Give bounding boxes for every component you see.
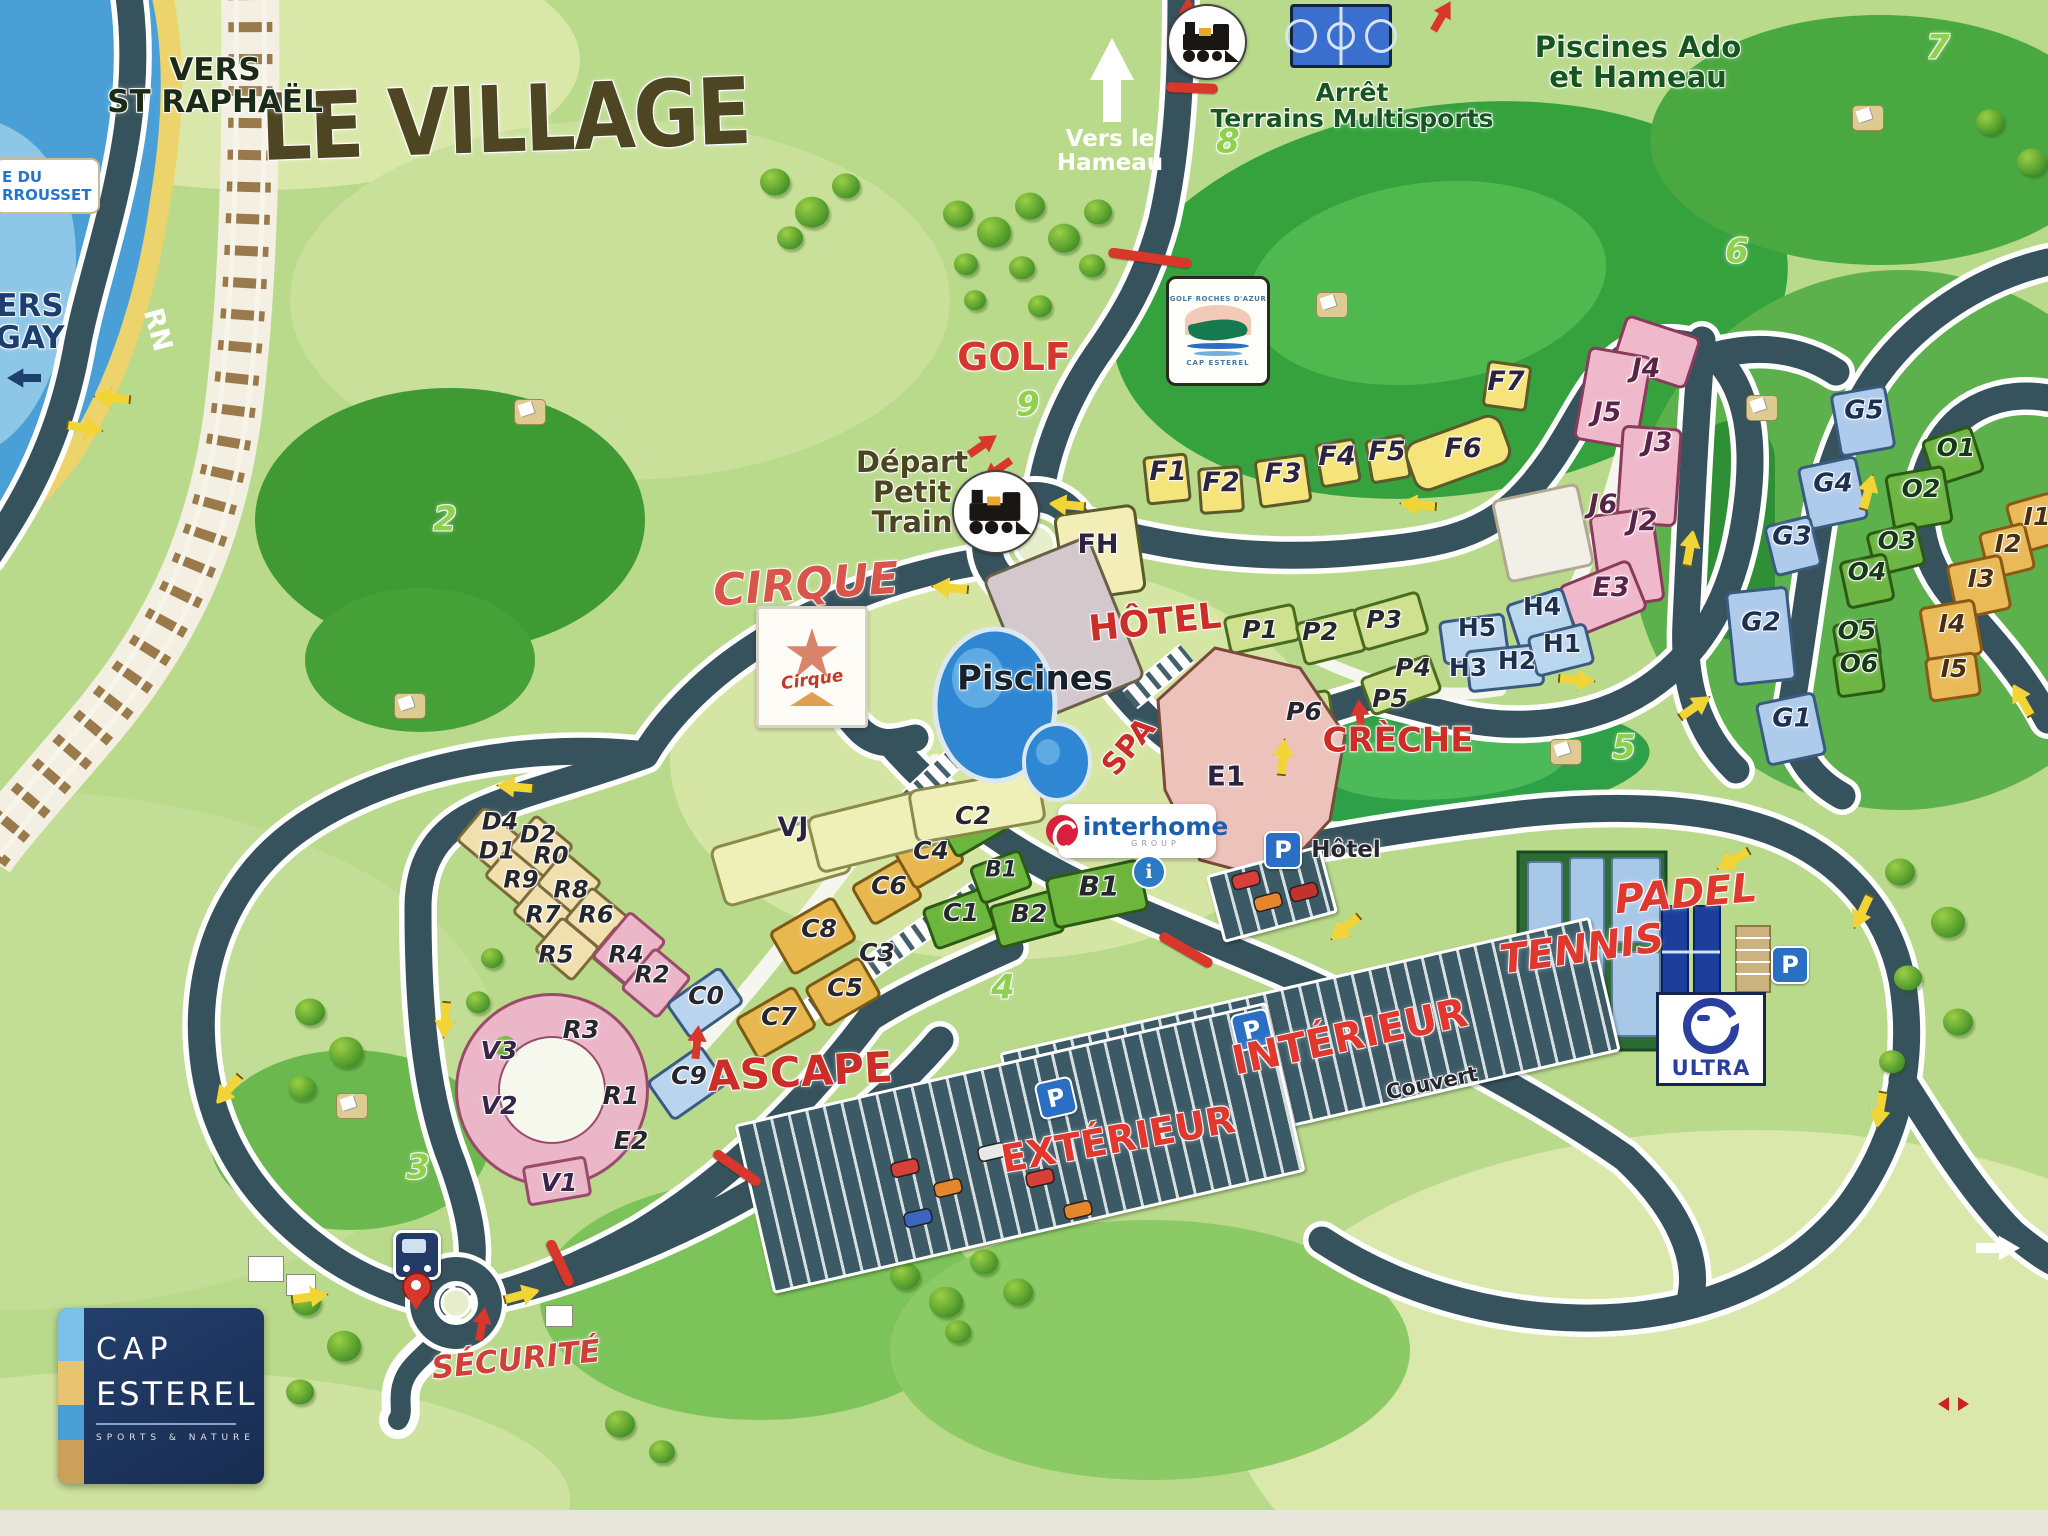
paper-edge	[0, 1510, 2048, 1536]
golf-hole-6: 6	[1725, 234, 1749, 269]
train-icon	[1183, 22, 1239, 62]
petit-train-stop-icon	[1167, 4, 1247, 80]
map-label: I2	[1995, 531, 2022, 557]
interhome-sub-text: GROUP	[1131, 839, 1180, 848]
map-label: J5	[1593, 399, 1622, 427]
interhome-badge: interhome GROUP	[1058, 804, 1216, 858]
tree-icon	[970, 1249, 998, 1274]
map-label: V3	[481, 1038, 518, 1064]
tree-icon	[1048, 224, 1080, 253]
vers-st-raphael: VERS ST RAPHAËL	[107, 54, 323, 118]
sun-lounger-icon	[337, 1094, 367, 1118]
golf-label: GOLF	[957, 338, 1071, 378]
cirque-logo: Cirque	[756, 606, 868, 728]
map-label: P4	[1395, 655, 1431, 681]
map-label: O6	[1840, 651, 1879, 677]
golf-hole-4: 4	[991, 970, 1015, 1005]
map-label: P5	[1372, 686, 1408, 712]
map-label: V1	[541, 1170, 578, 1196]
tree-icon	[1003, 1279, 1033, 1306]
tree-icon	[329, 1037, 363, 1068]
map-label: D4	[482, 810, 519, 835]
map-label: C7	[761, 1004, 797, 1030]
multisport-court-icon	[1290, 4, 1392, 68]
map-label: R2	[634, 963, 669, 988]
tree-icon	[288, 1075, 316, 1100]
map-label: C0	[688, 983, 724, 1009]
tree-icon	[1943, 1009, 1973, 1036]
map-label: B1	[985, 860, 1017, 883]
map-label: F1	[1149, 458, 1186, 486]
tree-icon	[466, 991, 490, 1013]
map-label: F2	[1202, 469, 1239, 497]
map-label: C9	[671, 1063, 707, 1089]
map-label: R6	[578, 903, 613, 928]
vers-agay: ERS GAY	[0, 290, 64, 354]
map-label: V2	[481, 1093, 518, 1119]
interhome-icon	[1046, 815, 1078, 847]
bldg-vj: VJ	[778, 814, 809, 842]
map-label: C1	[943, 900, 979, 926]
logo-line1: CAP	[96, 1332, 258, 1367]
tree-icon	[890, 1263, 920, 1290]
map-label: F6	[1444, 435, 1481, 463]
map-label: H1	[1543, 631, 1581, 657]
beach-sign-line1: E DU	[2, 168, 42, 186]
legend-fragment	[1938, 1396, 1978, 1410]
map-label: R0	[533, 844, 568, 869]
tree-icon	[1976, 109, 2004, 134]
tree-icon	[295, 999, 325, 1026]
map-label: R7	[525, 903, 560, 928]
tree-icon	[605, 1411, 635, 1438]
tree-icon	[943, 201, 973, 228]
map-label: R8	[553, 878, 588, 903]
map-label: R5	[538, 943, 573, 968]
map-label: I3	[1968, 566, 1995, 592]
map-label: H3	[1449, 655, 1487, 681]
map-label: J6	[1589, 491, 1618, 519]
parking-hotel-label: Hôtel	[1311, 839, 1381, 863]
map-label: J2	[1629, 508, 1658, 536]
sun-lounger-icon	[1853, 106, 1883, 130]
tree-icon	[481, 948, 503, 968]
map-label: H5	[1458, 615, 1496, 641]
tree-icon	[286, 1379, 314, 1404]
tree-icon	[795, 197, 829, 228]
logo-subtitle: SPORTS & NATURE	[96, 1433, 258, 1443]
map-label: G4	[1813, 470, 1852, 497]
ascape-label: ASCAPE	[706, 1045, 894, 1098]
map-label: E2	[614, 1128, 648, 1154]
parking-sign: P	[1264, 831, 1302, 869]
sun-lounger-icon	[395, 694, 425, 718]
map-label: P6	[1286, 699, 1322, 725]
map-label: C8	[801, 916, 837, 942]
interhome-text: interhome	[1083, 814, 1229, 839]
golf-hole-8: 8	[1216, 124, 1240, 159]
tree-icon	[929, 1287, 963, 1318]
map-label: J3	[1644, 429, 1673, 457]
map-label: O1	[1937, 435, 1976, 461]
map-label: J4	[1632, 355, 1661, 383]
golf-badge-bottom-text: CAP ESTEREL	[1186, 359, 1249, 367]
tree-icon	[964, 290, 986, 310]
parking-sign: P	[1771, 946, 1809, 984]
depart-petit-train-icon	[952, 470, 1040, 554]
golf-club-badge: GOLF ROCHES D'AZUR CAP ESTEREL	[1166, 276, 1270, 386]
building-annex	[1492, 484, 1593, 582]
map-label: C6	[871, 873, 907, 899]
map-label: C5	[827, 975, 863, 1001]
ultra-badge: ULTRA	[1656, 992, 1766, 1086]
map-label: F7	[1487, 368, 1524, 396]
tree-icon	[2017, 149, 2047, 176]
map-label: B1	[1079, 871, 1120, 900]
map-label: I1	[2024, 504, 2048, 530]
golf-hole-2: 2	[433, 502, 457, 537]
map-label: F3	[1264, 460, 1301, 488]
arret-terrains-multisports: Arrêt Terrains Multisports	[1210, 80, 1493, 132]
map-label: O5	[1838, 618, 1877, 644]
golf-badge-top-text: GOLF ROCHES D'AZUR	[1170, 295, 1267, 303]
map-label: C3	[859, 940, 895, 966]
golf-hole-3: 3	[406, 1150, 430, 1185]
map-label: D1	[479, 839, 516, 864]
logo-line2: ESTEREL	[96, 1375, 258, 1413]
map-label: P2	[1302, 619, 1338, 645]
map-label: P1	[1242, 617, 1278, 643]
golf-hole-9: 9	[1016, 387, 1040, 422]
map-label: F5	[1368, 438, 1405, 466]
creche-label: CRÈCHE	[1323, 723, 1474, 758]
map-label: O4	[1848, 559, 1887, 585]
map-label: P3	[1366, 607, 1402, 633]
tree-icon	[760, 169, 790, 196]
info-icon: i	[1132, 855, 1166, 889]
sun-lounger-icon	[1747, 396, 1777, 420]
map-label: G1	[1772, 705, 1811, 732]
map-label: O2	[1902, 476, 1941, 502]
small-building	[248, 1256, 284, 1282]
map-label: C2	[955, 803, 991, 829]
padel-courts	[1662, 906, 1770, 998]
sun-lounger-icon	[515, 400, 545, 424]
tree-icon	[327, 1331, 361, 1362]
golf-hole-5: 5	[1612, 730, 1636, 765]
tree-icon	[1931, 907, 1965, 938]
map-label: G2	[1741, 609, 1780, 636]
map-label: H2	[1498, 648, 1536, 674]
map-label: O3	[1878, 528, 1917, 554]
sun-lounger-icon	[1551, 740, 1581, 764]
piscines-ado-et-hameau: Piscines Ado et Hameau	[1535, 32, 1741, 92]
piscines-label: Piscines	[957, 661, 1113, 696]
cap-esterel-logo: CAP ESTEREL SPORTS & NATURE	[58, 1308, 264, 1484]
tree-icon	[832, 173, 860, 198]
cirque-logo-text: Cirque	[780, 666, 845, 695]
ultra-icon	[1683, 998, 1739, 1054]
hameau-direction-arrow	[1090, 38, 1134, 122]
map-label: E3	[1592, 574, 1629, 602]
small-building	[545, 1305, 573, 1327]
beach-sign: E DU RROUSSET	[0, 158, 100, 214]
map-title: LE VILLAGE	[259, 64, 751, 177]
map-label: G5	[1844, 397, 1883, 424]
map-label: B2	[1011, 901, 1047, 927]
tree-icon	[1084, 199, 1112, 224]
bldg-e1: E1	[1207, 761, 1246, 790]
map-label: C4	[913, 838, 949, 864]
location-pin-icon	[402, 1272, 430, 1308]
map-label: R1	[603, 1083, 640, 1109]
tree-icon	[1894, 965, 1922, 990]
logo-photo-strip	[58, 1308, 84, 1484]
tree-icon	[1015, 193, 1045, 220]
tree-icon	[954, 253, 978, 275]
beach-sign-line2: RROUSSET	[2, 186, 91, 204]
bldg-fh: FH	[1077, 531, 1118, 559]
map-label: H4	[1523, 594, 1561, 620]
tree-icon	[1028, 295, 1052, 317]
map-label: G3	[1772, 523, 1811, 550]
depart-petit-train: Départ Petit Train	[856, 447, 968, 537]
map-label: I5	[1941, 656, 1968, 682]
map-label: F4	[1318, 443, 1355, 471]
vers-le-hameau: Vers le Hameau	[1057, 128, 1163, 176]
tree-icon	[1885, 859, 1915, 886]
map-label: I4	[1939, 611, 1966, 637]
tree-icon	[977, 217, 1011, 248]
sun-lounger-icon	[1317, 293, 1347, 317]
map-label: R3	[563, 1017, 600, 1043]
map-label: R9	[503, 868, 538, 893]
ultra-text: ULTRA	[1672, 1056, 1751, 1080]
resort-map: E DU RROUSSET GOLF ROCHES D'AZUR CAP EST…	[0, 0, 2048, 1536]
golf-hole-7: 7	[1926, 30, 1950, 65]
